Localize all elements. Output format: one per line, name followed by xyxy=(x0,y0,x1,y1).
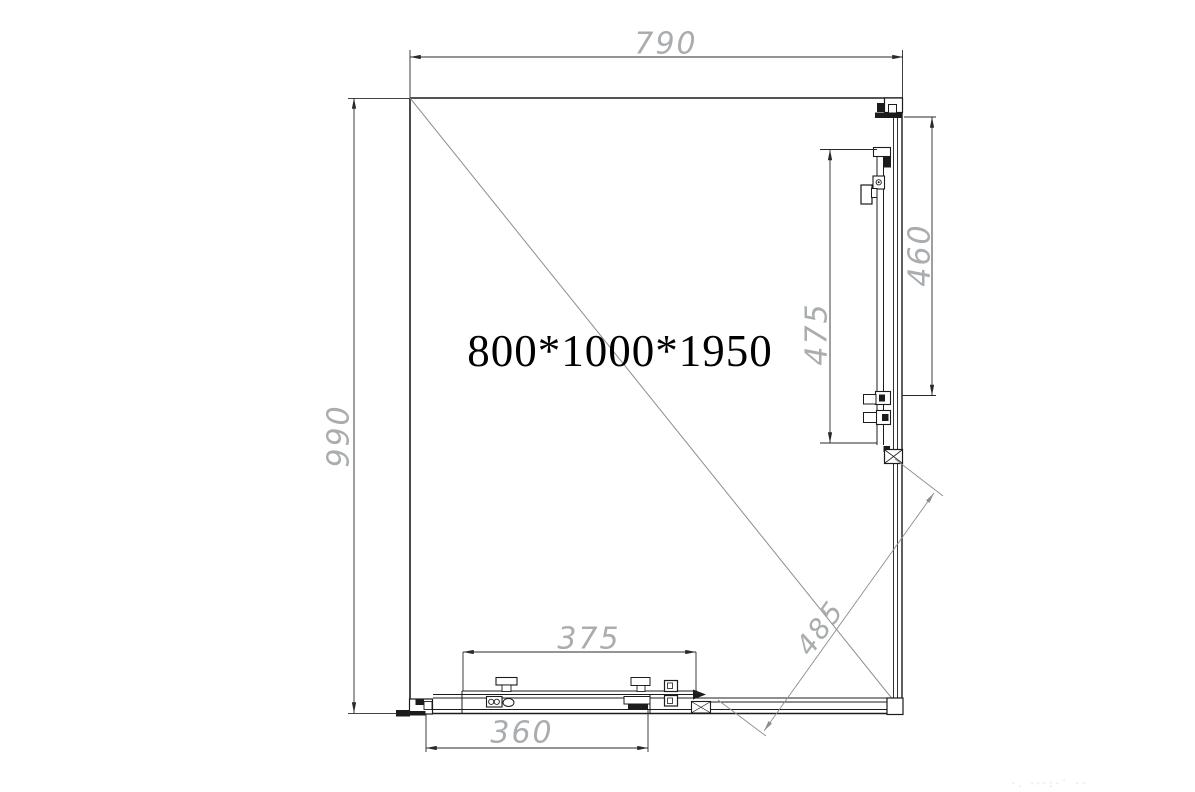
dim-label-bottom-door: 360 xyxy=(490,716,553,751)
bottom-left-corner-bracket xyxy=(396,699,433,717)
dim-label-left-height: 990 xyxy=(322,404,357,467)
right-sliding-door xyxy=(861,148,903,464)
right-door-handle xyxy=(861,176,885,204)
bottom-wall-profile xyxy=(410,698,903,715)
technical-drawing-canvas xyxy=(0,0,1195,792)
dimension-line-485 xyxy=(718,459,943,736)
bottom-door-handle xyxy=(665,681,678,707)
dim-label-right-panel: 460 xyxy=(903,223,938,286)
bottom-door-roller-right xyxy=(624,678,650,710)
dim-label-top-width: 790 xyxy=(634,27,697,62)
watermark-fragment: ·. ···:·˙ ·· xyxy=(1012,779,1172,790)
right-wall-profile xyxy=(894,113,903,713)
dim-label-right-door: 475 xyxy=(800,302,835,365)
shower-enclosure-technical-drawing: 790 990 460 475 375 360 485 800*1000*195… xyxy=(0,0,1195,792)
dim-label-bottom-panel-top: 375 xyxy=(557,622,620,657)
right-door-bottom-bracket xyxy=(884,446,903,464)
bottom-sliding-door xyxy=(433,678,711,714)
bottom-door-roller-left xyxy=(487,678,518,708)
top-right-corner-bracket xyxy=(875,98,903,118)
bottom-door-receiver-bracket xyxy=(692,690,711,714)
dimension-line-375 xyxy=(463,652,696,694)
product-size-label: 800*1000*1950 xyxy=(467,325,773,377)
